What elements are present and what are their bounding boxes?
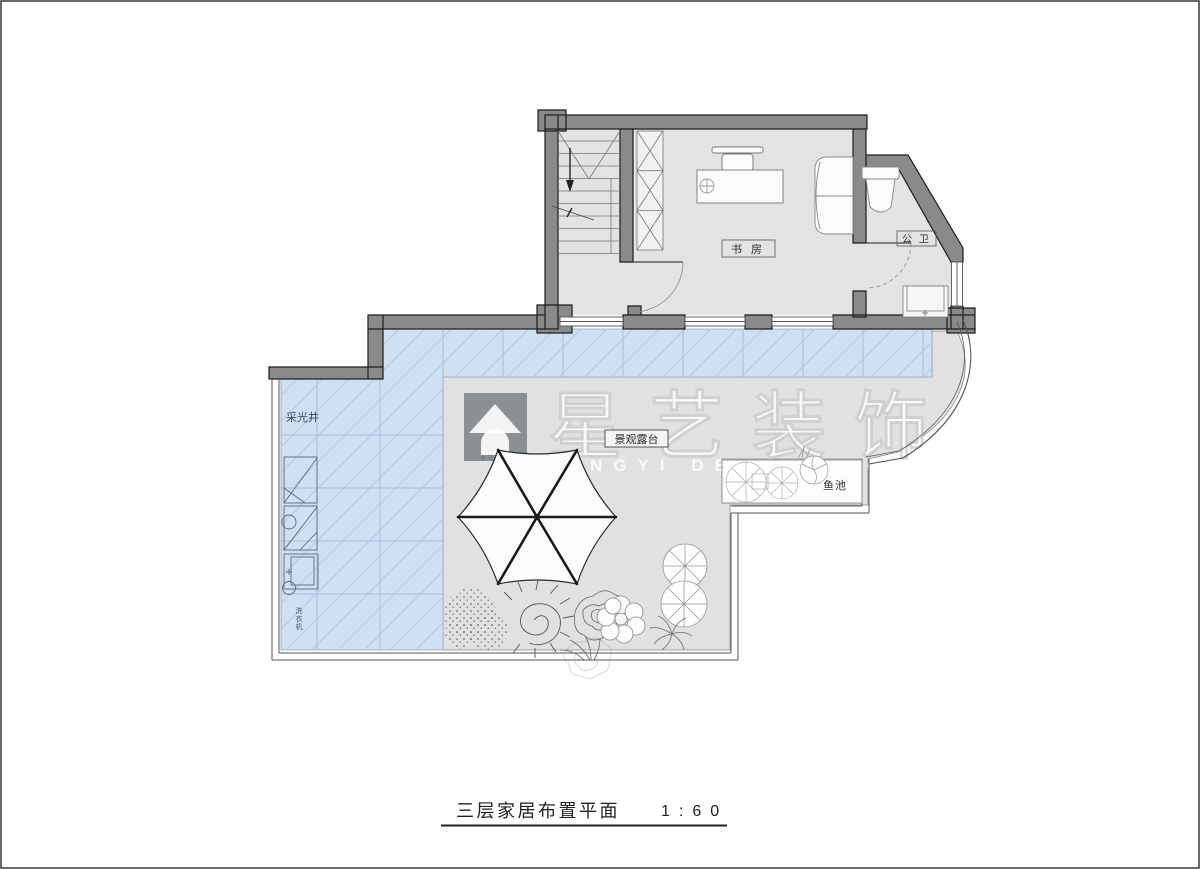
bathroom-sink [903, 286, 948, 317]
drawing-title: 三层家居布置平面 [456, 801, 620, 821]
study-label: 书 房 [731, 243, 765, 256]
utility-vertical-label: 洗衣机 [291, 607, 303, 641]
title-block: 三层家居布置平面 1:60 [441, 801, 728, 826]
terrace-label: 景观露台 [615, 432, 659, 446]
drawing-scale: 1:60 [661, 803, 728, 820]
skylight-well-label: 采光井 [286, 410, 319, 424]
fish-pond-label: 鱼池 [823, 478, 847, 492]
floorplan-drawing: 星艺装饰 星艺装饰 XINGYI DECORATION [0, 0, 1200, 869]
sofa [815, 157, 853, 234]
floorplan-page: 星艺装饰 星艺装饰 XINGYI DECORATION [0, 0, 1200, 869]
shaft [637, 131, 663, 250]
bathroom-label: 公 卫 [902, 235, 931, 246]
